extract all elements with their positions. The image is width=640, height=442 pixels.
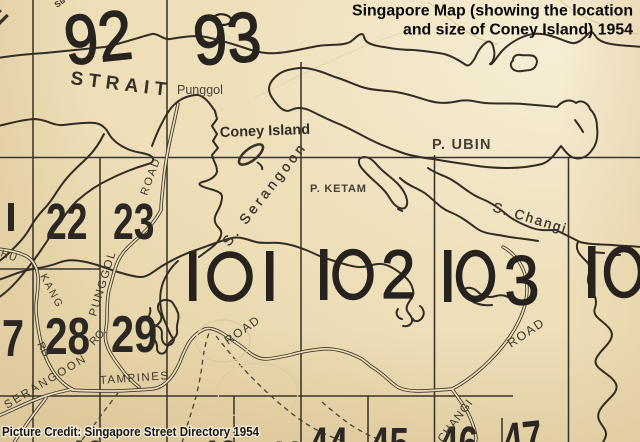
svg-text:Punggol: Punggol	[177, 83, 223, 97]
svg-text:P. UBIN: P. UBIN	[432, 137, 492, 153]
svg-text:47: 47	[500, 410, 544, 442]
svg-text:45: 45	[370, 418, 409, 442]
svg-text:P. KETAM: P. KETAM	[310, 183, 367, 195]
svg-text:and size of Coney Island) 1954: and size of Coney Island) 1954	[403, 22, 633, 39]
svg-text:44: 44	[309, 418, 348, 442]
svg-text:7: 7	[2, 309, 24, 368]
svg-text:93: 93	[191, 0, 264, 80]
svg-text:Singapore Map (showing the loc: Singapore Map (showing the location	[352, 3, 633, 20]
svg-text:3: 3	[503, 242, 541, 321]
svg-text:22: 22	[46, 194, 87, 250]
svg-text:2: 2	[381, 236, 416, 313]
svg-text:Picture Credit: Singapore Stre: Picture Credit: Singapore Street Directo…	[2, 424, 260, 439]
svg-text:29: 29	[111, 305, 157, 364]
svg-text:23: 23	[113, 194, 154, 250]
svg-text:43: 43	[266, 432, 305, 442]
